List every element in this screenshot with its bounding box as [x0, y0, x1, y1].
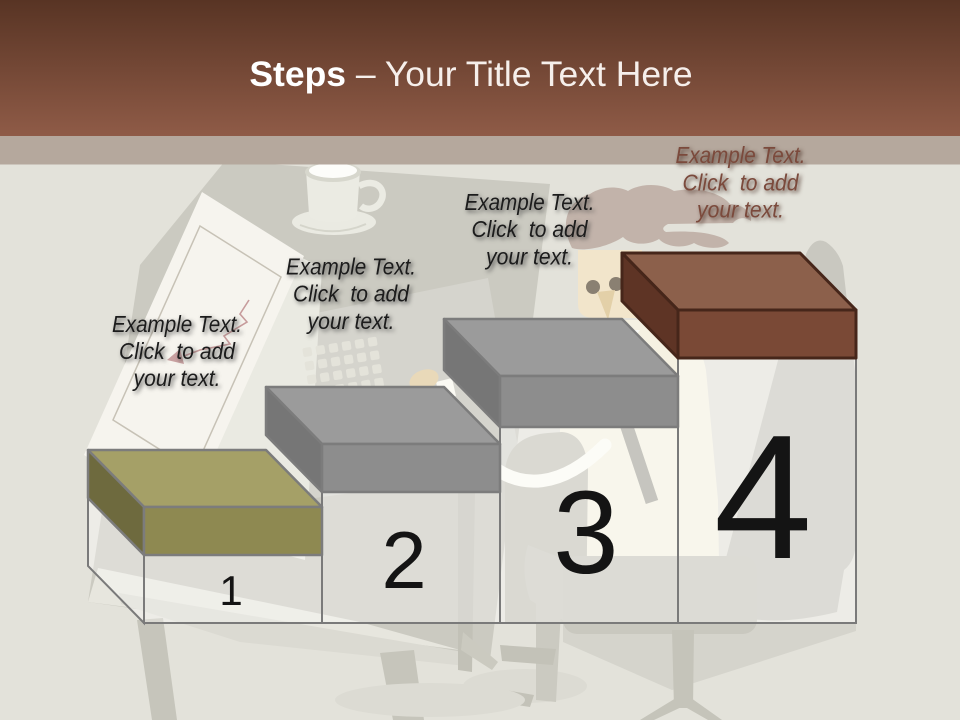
- svg-text:4: 4: [714, 398, 812, 596]
- svg-text:Example Text.: Example Text.: [112, 311, 242, 337]
- svg-text:your text.: your text.: [306, 308, 395, 334]
- svg-text:your text.: your text.: [132, 365, 221, 391]
- svg-text:Example Text.: Example Text.: [465, 189, 595, 215]
- svg-text:1: 1: [219, 567, 242, 614]
- svg-text:2: 2: [381, 516, 426, 606]
- svg-text:Click to add: Click to add: [472, 216, 589, 242]
- svg-text:Click to add: Click to add: [293, 281, 410, 307]
- svg-text:Click to add: Click to add: [683, 169, 800, 195]
- svg-text:Steps – Your Title Text Here: Steps – Your Title Text Here: [249, 54, 692, 94]
- svg-text:Example Text.: Example Text.: [286, 253, 416, 279]
- svg-text:Example Text.: Example Text.: [676, 142, 806, 168]
- svg-text:your text.: your text.: [695, 197, 784, 223]
- svg-text:Click to add: Click to add: [119, 338, 236, 364]
- svg-text:3: 3: [553, 467, 619, 599]
- svg-text:your text.: your text.: [484, 243, 573, 269]
